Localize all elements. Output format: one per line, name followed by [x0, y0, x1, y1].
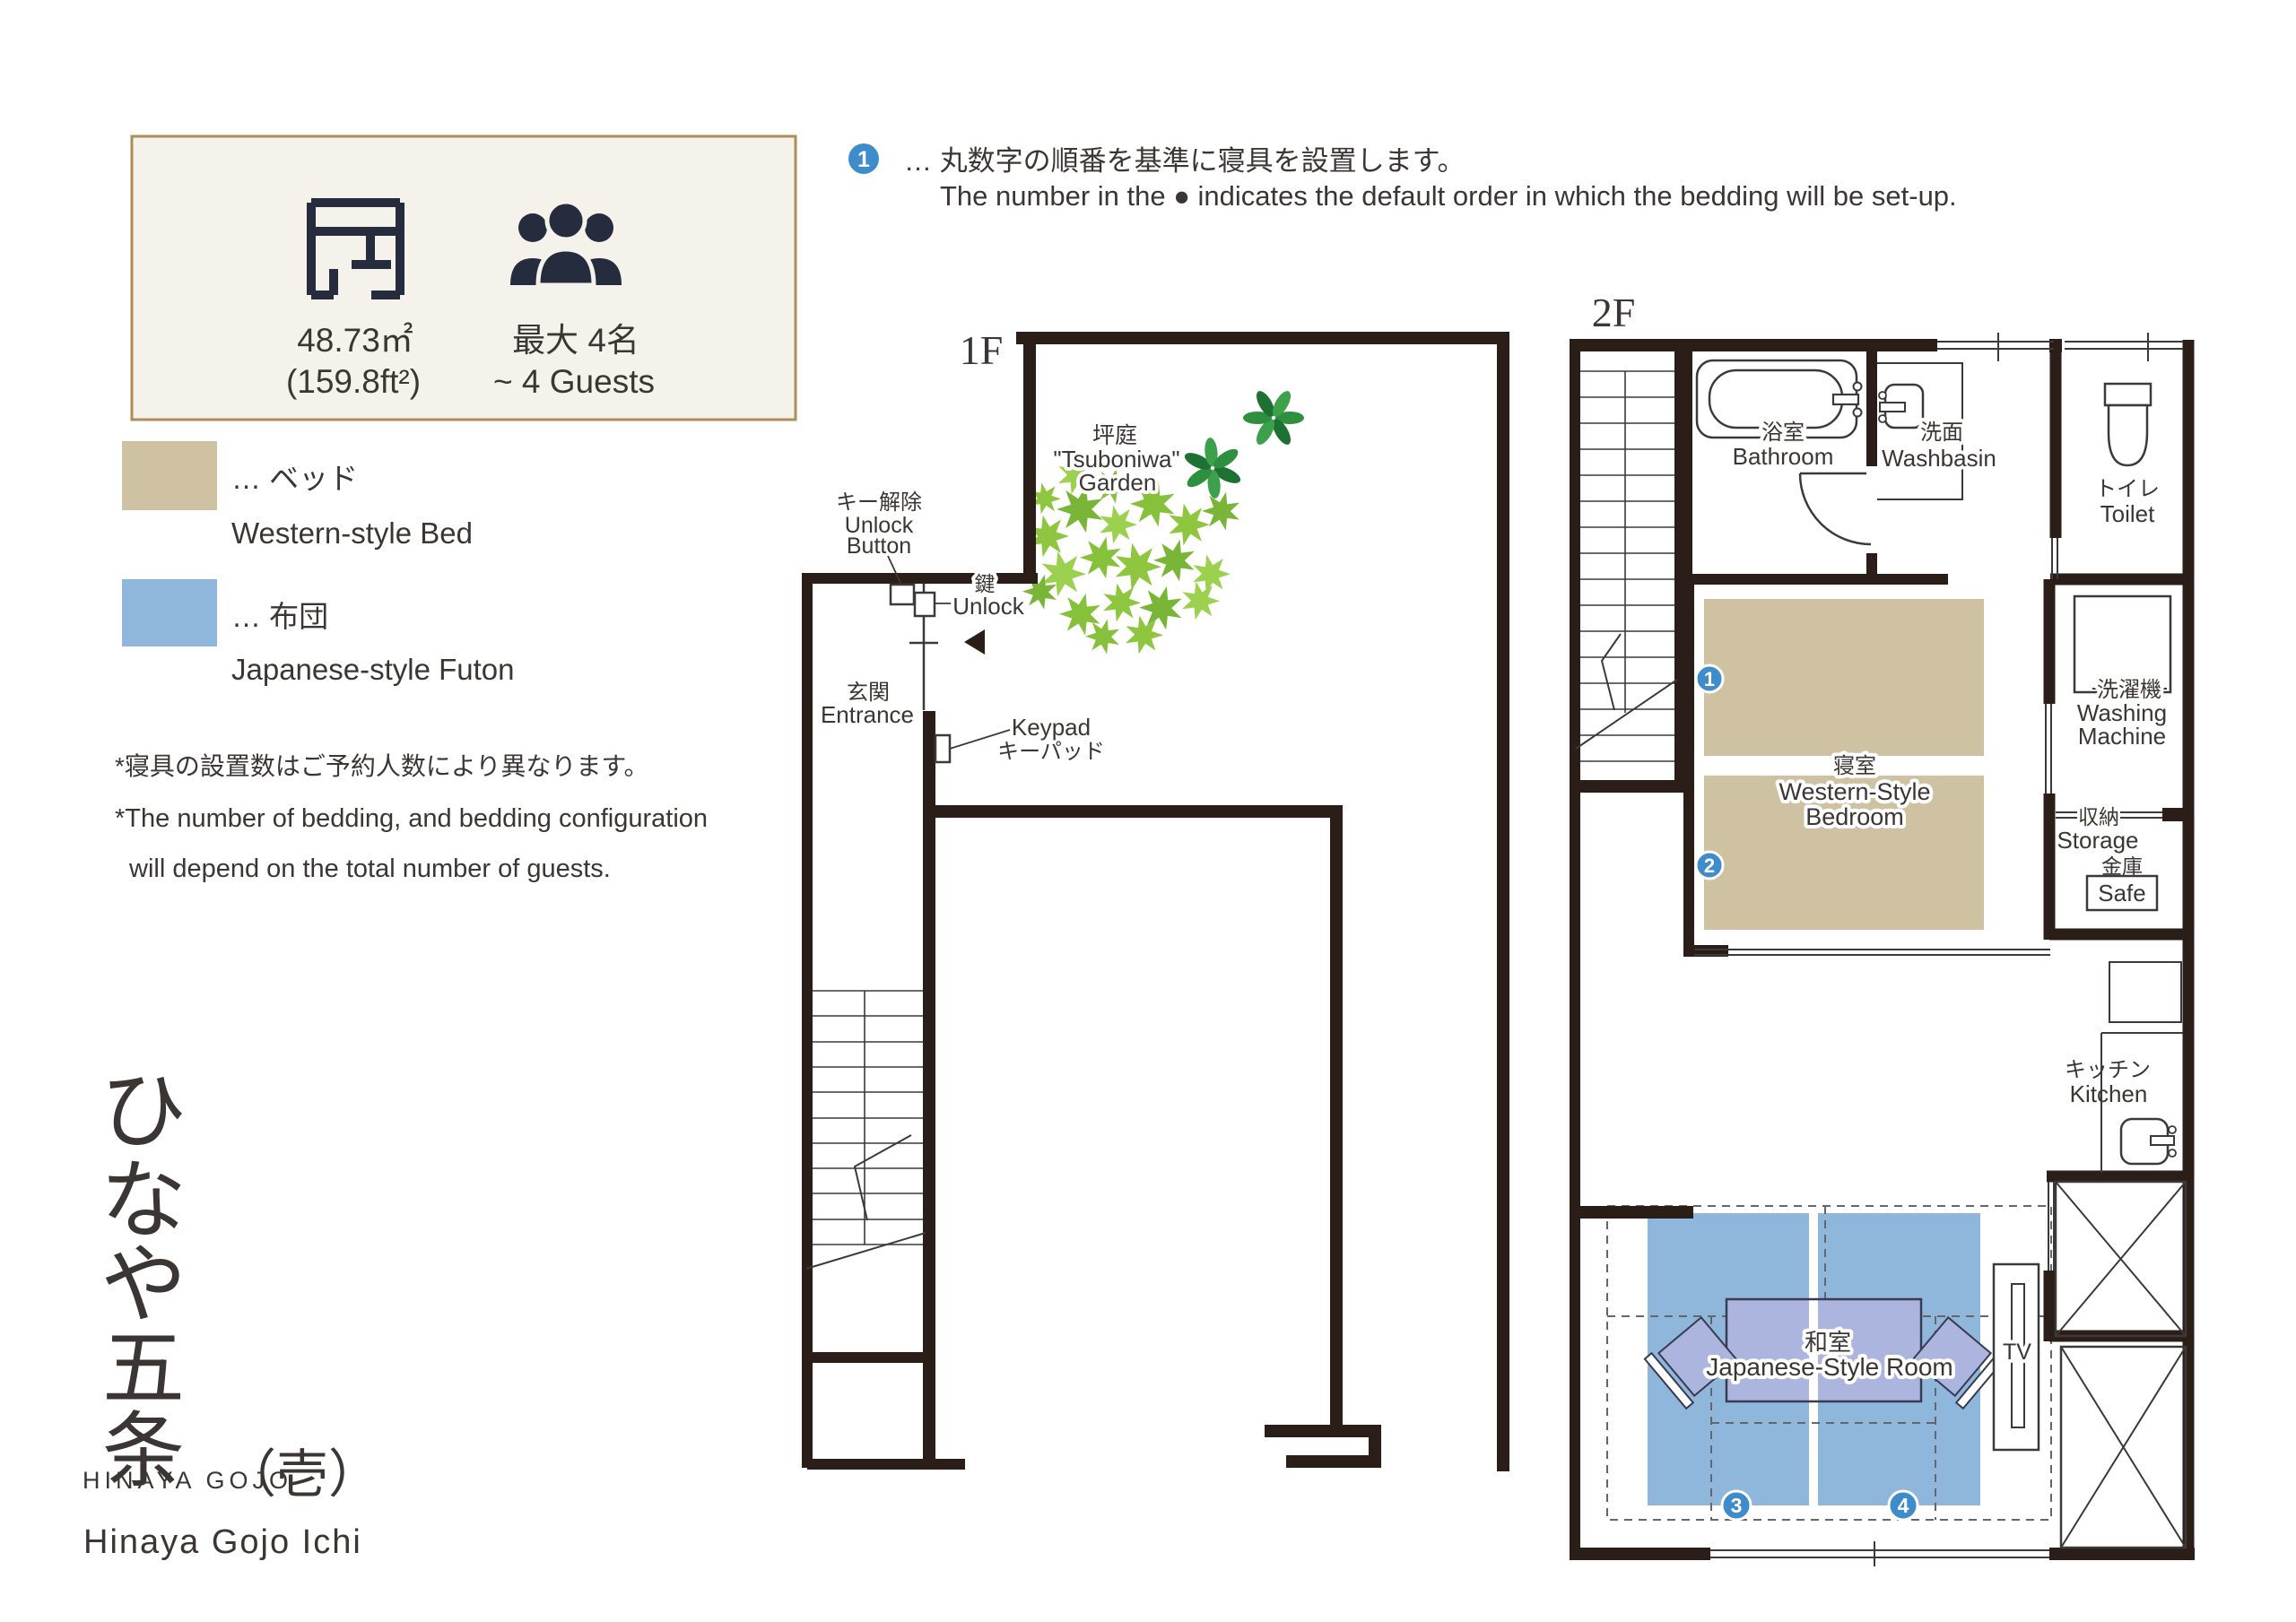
closet-2-x [2061, 1347, 2186, 1548]
info-box: 48.73㎡ (159.8ft²) 最大 4名 ~ 4 Guests [132, 136, 796, 420]
maple-leaf-icon [1080, 537, 1121, 579]
bedding-badge-4: 4 [1889, 1491, 1918, 1520]
safe-label-jp: 金庫 [2101, 854, 2143, 878]
washbasin-knob-1 [1879, 392, 1886, 399]
kitchen-label-en: Kitchen [2070, 1080, 2148, 1107]
washing-label-en2: Machine [2078, 723, 2166, 750]
toilet-label-jp: トイレ [2095, 477, 2160, 501]
storage-label-en: Storage [2057, 827, 2138, 854]
kitchen-counter [2109, 962, 2181, 1022]
maple-leaf-icon [1153, 540, 1195, 582]
bathroom-label-en: Bathroom [1733, 443, 1834, 470]
legend-futon-jp: … 布団 [231, 600, 328, 633]
area-ft2: (159.8ft²) [286, 363, 421, 400]
guests-icon-head-left [518, 213, 547, 242]
western-bed-1 [1704, 599, 1984, 756]
washbasin-label-jp: 洗面 [1920, 421, 1963, 445]
legend: … ベッド Western-style Bed … 布団 Japanese-st… [115, 441, 708, 883]
logo-kanji-4: 五 [102, 1323, 185, 1415]
bathtub-faucet [1833, 395, 1858, 404]
setup-note: 1 … 丸数字の順番を基準に寝具を設置します。 The number in th… [848, 143, 1957, 212]
washing-label-jp: 洗濯機 [2097, 678, 2161, 702]
toilet-label-en: Toilet [2100, 500, 2155, 527]
logo-romaji: Hinaya Gojo Ichi [83, 1523, 362, 1561]
key-unlock-box [915, 593, 935, 616]
kitchen-label-jp: キッチン [2065, 1058, 2151, 1082]
stairs-2f-arrow [1602, 634, 1621, 710]
washbasin-label-en: Washbasin [1882, 445, 1996, 472]
maple-leaf-icon [1103, 584, 1141, 622]
bedding-badge-2: 2 [1696, 852, 1723, 879]
floor2-plan: 2F [1570, 290, 2195, 1566]
badge-1-num: 1 [1704, 668, 1715, 690]
garden-label-en2: Garden [1079, 469, 1157, 496]
bedroom-label-jp: 寝室 [1833, 754, 1876, 778]
storage-label-jp: 収納 [2078, 805, 2119, 828]
bedroom-label-en1: Western-Style [1779, 778, 1930, 805]
maple-leaf-icon [1182, 582, 1220, 620]
keypad-box [935, 735, 950, 762]
logo-kanji-3: や [100, 1237, 187, 1333]
storage-wall-stub [2162, 808, 2184, 821]
stairs-1f-break-line [806, 1233, 926, 1269]
legend-futon-swatch [122, 579, 217, 646]
closet-1-x [2056, 1182, 2186, 1336]
waroom-label-en: Japanese-Style Room [1706, 1353, 1952, 1381]
area-m2: 48.73㎡ [297, 321, 413, 359]
waroom-label-jp: 和室 [1805, 1329, 1851, 1356]
bathroom-label-jp: 浴室 [1761, 421, 1805, 445]
maple-leaf-icon [1126, 616, 1163, 655]
logo-kanji-1: ひ [100, 1063, 187, 1159]
keypad-label-en: Keypad [1012, 714, 1091, 741]
maple-leaf-icon [1139, 586, 1182, 630]
setup-note-jp: … 丸数字の順番を基準に寝具を設置します。 [904, 145, 1465, 177]
bathtub-knob-1 [1854, 383, 1862, 391]
badge-3-num: 3 [1731, 1494, 1743, 1517]
capacity-jp: 最大 4名 [512, 322, 639, 359]
bedding-badge-1: 1 [1696, 665, 1723, 692]
bathtub-knob-2 [1854, 409, 1862, 417]
toilet-tank [2105, 384, 2151, 405]
key-label-en: Unlock [952, 593, 1024, 620]
unlock-button-label-en2: Button [847, 533, 911, 559]
guests-icon-head-center [547, 202, 585, 239]
brand-logo: ひ な や 五 条 HINAYA GOJO （壱） Hinaya Gojo Ic… [83, 1063, 380, 1561]
legend-bed-jp: … ベッド [231, 462, 358, 495]
badge-4-num: 4 [1898, 1494, 1909, 1517]
legend-note-jp: *寝具の設置数はご予約人数により異なります。 [115, 752, 649, 780]
guests-icon-head-right [585, 213, 613, 242]
garden-leaves [1022, 388, 1304, 655]
setup-note-en: The number in the ● indicates the defaul… [940, 180, 1957, 212]
stairs-1f-arrow [855, 1135, 911, 1220]
toilet-bowl [2109, 405, 2147, 465]
stairs-2f [1580, 371, 1674, 761]
legend-bed-en: Western-style Bed [231, 516, 473, 550]
legend-note-en2: will depend on the total number of guest… [128, 854, 611, 883]
stairs-2f-break-line [1576, 680, 1677, 749]
washbasin-knob-2 [1879, 415, 1886, 422]
maple-leaf-icon [1059, 594, 1100, 636]
floorplan-canvas: 48.73㎡ (159.8ft²) 最大 4名 ~ 4 Guests … ベッド… [0, 0, 2296, 1622]
maple-leaf-icon [1100, 506, 1137, 544]
legend-bed-swatch [122, 441, 217, 510]
kitchen-knob-1 [2169, 1126, 2176, 1133]
capacity-en: ~ 4 Guests [493, 363, 655, 400]
unlock-button-label-jp: キー解除 [836, 490, 922, 515]
kitchen-faucet [2151, 1136, 2174, 1145]
info-box-frame [132, 136, 796, 420]
keypad-label-jp: キーパッド [997, 740, 1105, 764]
logo-kanji-2: な [100, 1153, 187, 1249]
legend-note-en1: *The number of bedding, and bedding conf… [115, 804, 708, 833]
maple-leaf-icon [1169, 504, 1210, 546]
bedding-badge-3: 3 [1722, 1491, 1751, 1520]
safe-label-en: Safe [2098, 880, 2146, 906]
legend-futon-en: Japanese-style Futon [231, 653, 515, 686]
washbasin-faucet [1880, 403, 1905, 412]
floor2-label: 2F [1592, 290, 1636, 335]
stairs-1f [813, 991, 923, 1245]
entrance-label-en: Entrance [821, 701, 914, 728]
logo-suffix: （壱） [224, 1445, 380, 1504]
closet-1 [2056, 1182, 2186, 1336]
floorplan-page: 48.73㎡ (159.8ft²) 最大 4名 ~ 4 Guests … ベッド… [0, 0, 2296, 1622]
floor1-plan: 1F 坪庭 "Tsuboniwa" Garden キー解除 Unlock But… [802, 327, 1509, 1471]
maple-leaf-icon [1116, 543, 1161, 591]
bedroom-label-en2: Bedroom [1805, 803, 1904, 830]
kitchen-knob-2 [2169, 1149, 2176, 1157]
badge-2-num: 2 [1704, 854, 1715, 877]
closet-2 [2061, 1347, 2186, 1548]
tv-label: TV [2003, 1340, 2031, 1365]
guests-icon-body-center [538, 249, 594, 285]
setup-note-badge-num: 1 [857, 147, 870, 172]
maple-leaf-icon [1085, 620, 1119, 655]
entrance-arrow-icon [964, 629, 985, 655]
garden-label-jp: 坪庭 [1092, 423, 1137, 448]
bathroom-door [1800, 473, 1871, 544]
floor1-label: 1F [960, 327, 1004, 373]
unlock-button-box [891, 585, 914, 604]
